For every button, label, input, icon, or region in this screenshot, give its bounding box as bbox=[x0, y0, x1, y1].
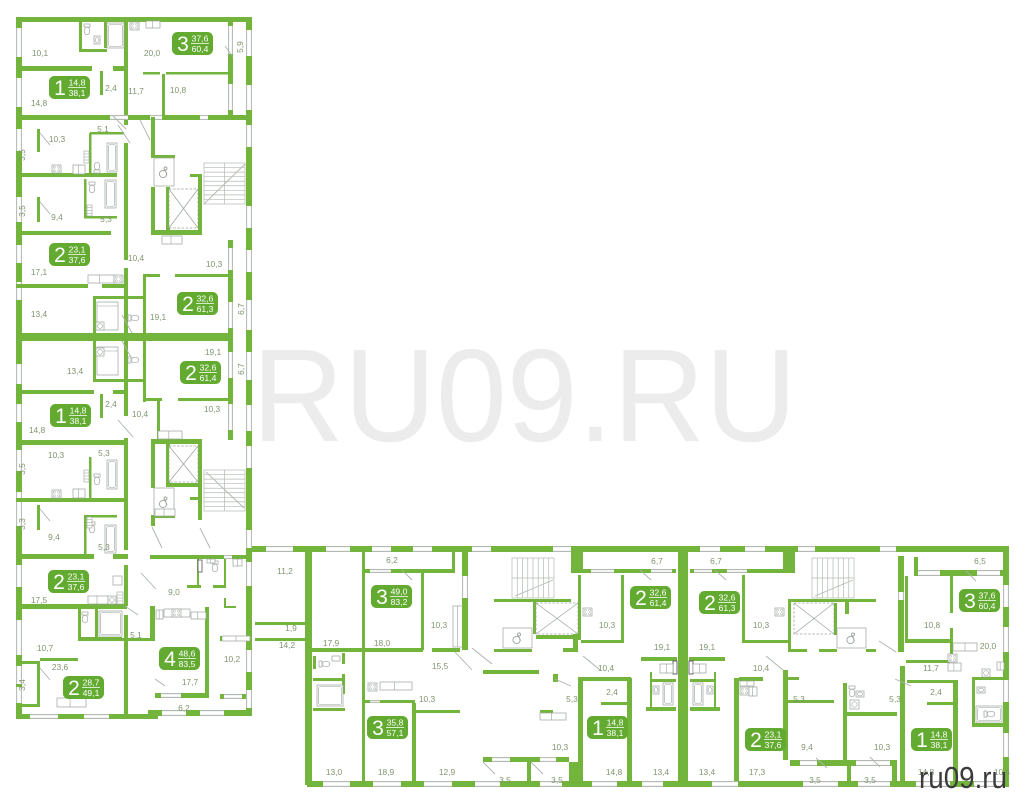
svg-text:32,6: 32,6 bbox=[197, 294, 214, 304]
svg-text:2: 2 bbox=[68, 677, 80, 700]
svg-text:37,6: 37,6 bbox=[68, 582, 85, 592]
svg-text:10,3: 10,3 bbox=[204, 404, 221, 414]
svg-text:3,5: 3,5 bbox=[551, 775, 563, 785]
svg-text:10,4: 10,4 bbox=[132, 409, 149, 419]
svg-text:61,4: 61,4 bbox=[650, 598, 667, 608]
svg-text:61,3: 61,3 bbox=[719, 603, 736, 613]
svg-text:10,1: 10,1 bbox=[32, 48, 49, 58]
svg-text:37,6: 37,6 bbox=[69, 255, 86, 265]
svg-text:5,1: 5,1 bbox=[130, 630, 142, 640]
svg-text:19,1: 19,1 bbox=[654, 642, 671, 652]
svg-text:37,6: 37,6 bbox=[192, 34, 209, 44]
svg-text:49,0: 49,0 bbox=[391, 587, 408, 597]
svg-text:1: 1 bbox=[916, 729, 928, 752]
svg-text:83,2: 83,2 bbox=[391, 597, 408, 607]
svg-text:38,1: 38,1 bbox=[70, 416, 87, 426]
svg-text:20,0: 20,0 bbox=[980, 641, 997, 651]
svg-text:5,3: 5,3 bbox=[793, 694, 805, 704]
svg-text:14,8: 14,8 bbox=[29, 425, 46, 435]
svg-text:10,3: 10,3 bbox=[874, 742, 891, 752]
svg-text:10,4: 10,4 bbox=[598, 663, 615, 673]
svg-text:1: 1 bbox=[54, 77, 66, 100]
svg-text:35,8: 35,8 bbox=[387, 718, 404, 728]
svg-text:37,6: 37,6 bbox=[979, 591, 996, 601]
svg-text:17,1: 17,1 bbox=[31, 267, 48, 277]
svg-text:17,9: 17,9 bbox=[323, 638, 340, 648]
svg-text:20,0: 20,0 bbox=[144, 48, 161, 58]
svg-text:4: 4 bbox=[164, 648, 176, 671]
svg-text:13,4: 13,4 bbox=[699, 767, 716, 777]
svg-text:5,3: 5,3 bbox=[566, 694, 578, 704]
svg-text:6,5: 6,5 bbox=[974, 556, 986, 566]
svg-text:2,4: 2,4 bbox=[606, 687, 618, 697]
svg-text:2: 2 bbox=[53, 571, 65, 594]
svg-text:6,2: 6,2 bbox=[178, 703, 190, 713]
svg-text:38,1: 38,1 bbox=[931, 740, 948, 750]
svg-text:60,4: 60,4 bbox=[979, 601, 996, 611]
svg-text:6,2: 6,2 bbox=[386, 555, 398, 565]
svg-text:38,1: 38,1 bbox=[607, 728, 624, 738]
svg-text:1,9: 1,9 bbox=[285, 623, 297, 633]
svg-text:23,1: 23,1 bbox=[765, 730, 782, 740]
svg-text:2: 2 bbox=[185, 362, 197, 385]
svg-text:17,5: 17,5 bbox=[31, 595, 48, 605]
svg-text:18,9: 18,9 bbox=[378, 767, 395, 777]
svg-text:60,4: 60,4 bbox=[192, 44, 209, 54]
svg-text:10,4: 10,4 bbox=[753, 663, 770, 673]
svg-text:14,8: 14,8 bbox=[70, 406, 87, 416]
svg-text:10,3: 10,3 bbox=[431, 620, 448, 630]
svg-text:2,4: 2,4 bbox=[930, 687, 942, 697]
svg-text:3,5: 3,5 bbox=[17, 205, 27, 217]
svg-text:10,8: 10,8 bbox=[170, 85, 187, 95]
svg-text:19,1: 19,1 bbox=[699, 642, 716, 652]
svg-text:6,7: 6,7 bbox=[651, 556, 663, 566]
svg-text:12,9: 12,9 bbox=[439, 767, 456, 777]
svg-text:3: 3 bbox=[376, 586, 388, 609]
svg-text:3: 3 bbox=[177, 33, 189, 56]
svg-text:5,1: 5,1 bbox=[97, 124, 109, 134]
svg-text:2,4: 2,4 bbox=[105, 399, 117, 409]
svg-text:3,5: 3,5 bbox=[499, 775, 511, 785]
svg-text:49,1: 49,1 bbox=[83, 688, 100, 698]
svg-text:14,8: 14,8 bbox=[69, 78, 86, 88]
svg-text:11,2: 11,2 bbox=[277, 566, 293, 576]
svg-text:2: 2 bbox=[750, 729, 762, 752]
svg-text:61,3: 61,3 bbox=[197, 304, 214, 314]
svg-text:3,3: 3,3 bbox=[17, 518, 27, 530]
svg-text:3,5: 3,5 bbox=[809, 775, 821, 785]
svg-text:2,4: 2,4 bbox=[105, 83, 117, 93]
svg-text:3: 3 bbox=[372, 717, 384, 740]
svg-text:18,0: 18,0 bbox=[374, 638, 391, 648]
svg-text:5,3: 5,3 bbox=[889, 694, 901, 704]
svg-text:5,3: 5,3 bbox=[100, 214, 112, 224]
svg-text:ru09.ru: ru09.ru bbox=[919, 760, 1007, 795]
svg-text:10,3: 10,3 bbox=[599, 620, 616, 630]
svg-text:5,9: 5,9 bbox=[235, 41, 245, 53]
svg-text:28,7: 28,7 bbox=[83, 678, 100, 688]
svg-text:15,5: 15,5 bbox=[432, 661, 449, 671]
svg-text:13,4: 13,4 bbox=[67, 366, 84, 376]
svg-text:61,4: 61,4 bbox=[200, 373, 217, 383]
svg-text:10,4: 10,4 bbox=[128, 253, 145, 263]
svg-text:11,7: 11,7 bbox=[128, 86, 144, 96]
svg-text:19,1: 19,1 bbox=[150, 312, 167, 322]
svg-text:3,4: 3,4 bbox=[17, 679, 27, 691]
svg-text:3,5: 3,5 bbox=[17, 149, 27, 161]
svg-text:37,6: 37,6 bbox=[765, 740, 782, 750]
svg-text:14,8: 14,8 bbox=[607, 718, 624, 728]
svg-text:11,7: 11,7 bbox=[923, 663, 939, 673]
svg-text:6,7: 6,7 bbox=[236, 303, 246, 315]
svg-text:17,3: 17,3 bbox=[749, 767, 766, 777]
svg-text:19,1: 19,1 bbox=[205, 347, 222, 357]
svg-text:14,2: 14,2 bbox=[279, 640, 296, 650]
svg-text:38,1: 38,1 bbox=[69, 88, 86, 98]
svg-text:48,6: 48,6 bbox=[179, 649, 196, 659]
svg-text:17,7: 17,7 bbox=[182, 677, 199, 687]
svg-text:32,6: 32,6 bbox=[650, 588, 667, 598]
svg-text:2: 2 bbox=[704, 592, 716, 615]
svg-text:2: 2 bbox=[182, 293, 194, 316]
svg-text:3,5: 3,5 bbox=[864, 775, 876, 785]
svg-text:10,3: 10,3 bbox=[48, 450, 65, 460]
svg-text:14,8: 14,8 bbox=[931, 730, 948, 740]
svg-text:23,1: 23,1 bbox=[68, 572, 85, 582]
svg-text:10,3: 10,3 bbox=[552, 742, 569, 752]
svg-text:23,6: 23,6 bbox=[52, 662, 69, 672]
svg-text:14,8: 14,8 bbox=[31, 98, 48, 108]
svg-text:10,8: 10,8 bbox=[924, 620, 941, 630]
svg-text:RU09.RU: RU09.RU bbox=[252, 322, 797, 469]
svg-text:32,6: 32,6 bbox=[200, 363, 217, 373]
svg-text:3: 3 bbox=[964, 590, 976, 613]
svg-text:13,4: 13,4 bbox=[653, 767, 670, 777]
svg-text:10,3: 10,3 bbox=[49, 134, 66, 144]
svg-text:13,4: 13,4 bbox=[31, 309, 48, 319]
svg-text:13,0: 13,0 bbox=[326, 767, 343, 777]
svg-text:10,2: 10,2 bbox=[224, 654, 241, 664]
svg-text:10,3: 10,3 bbox=[419, 694, 436, 704]
svg-text:10,3: 10,3 bbox=[753, 620, 770, 630]
svg-text:1: 1 bbox=[592, 717, 604, 740]
svg-text:5,3: 5,3 bbox=[98, 542, 110, 552]
svg-text:10,7: 10,7 bbox=[37, 643, 54, 653]
svg-text:2: 2 bbox=[54, 244, 66, 267]
svg-text:57,1: 57,1 bbox=[387, 728, 404, 738]
svg-text:32,6: 32,6 bbox=[719, 593, 736, 603]
svg-text:3,5: 3,5 bbox=[17, 463, 27, 475]
svg-text:9,4: 9,4 bbox=[51, 212, 63, 222]
svg-text:6,7: 6,7 bbox=[710, 556, 722, 566]
svg-text:9,4: 9,4 bbox=[801, 742, 813, 752]
svg-text:1: 1 bbox=[55, 405, 67, 428]
svg-text:83,5: 83,5 bbox=[179, 659, 196, 669]
svg-text:2: 2 bbox=[635, 587, 647, 610]
svg-text:23,1: 23,1 bbox=[69, 245, 86, 255]
svg-text:10,3: 10,3 bbox=[206, 259, 223, 269]
svg-text:5,3: 5,3 bbox=[98, 448, 110, 458]
svg-text:14,8: 14,8 bbox=[606, 767, 623, 777]
svg-text:6,7: 6,7 bbox=[236, 363, 246, 375]
svg-text:9,0: 9,0 bbox=[168, 587, 180, 597]
svg-text:9,4: 9,4 bbox=[48, 532, 60, 542]
